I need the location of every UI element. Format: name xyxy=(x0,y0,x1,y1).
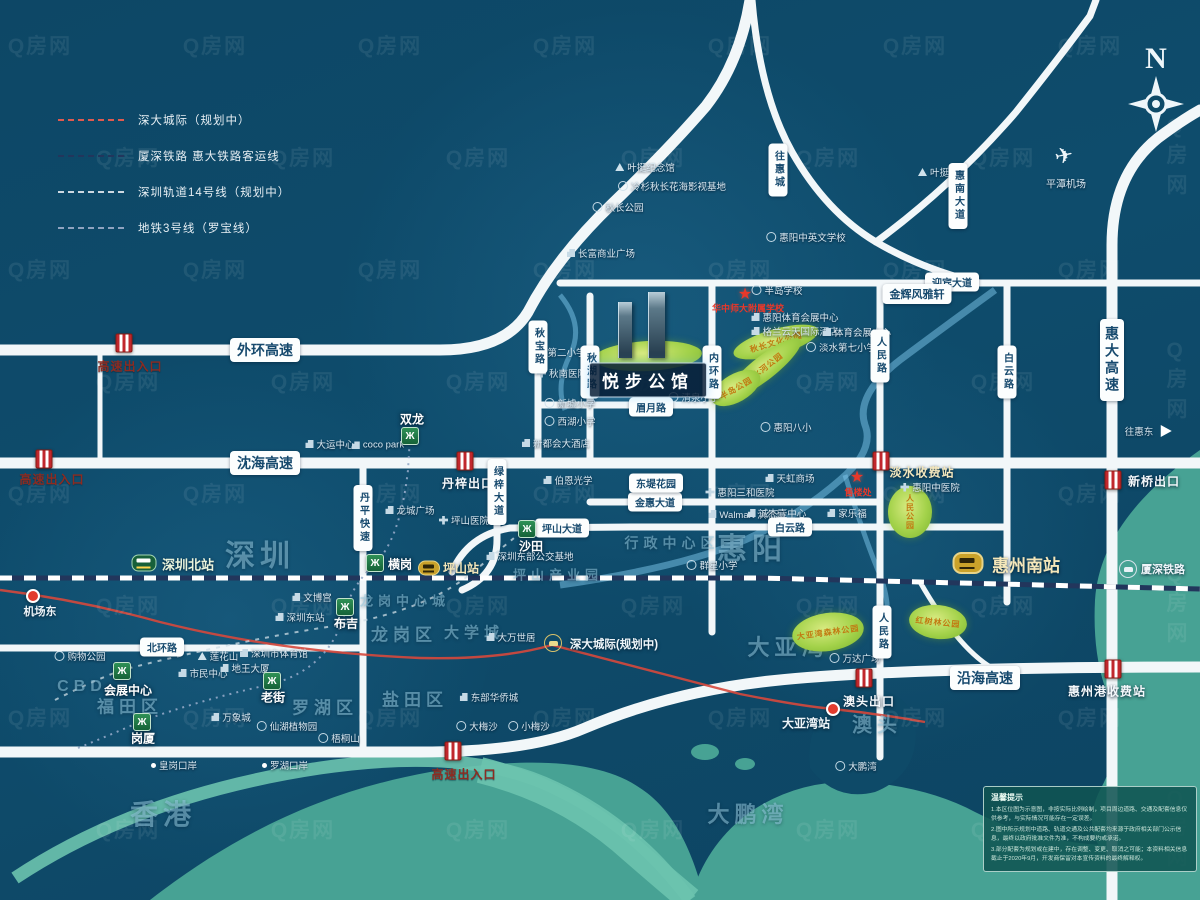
legend-item: 厦深铁路 惠大铁路客运线 xyxy=(58,148,290,164)
toll-gate-icon xyxy=(1105,471,1122,490)
poi-label: 购物公园 xyxy=(54,649,105,663)
poi-label: 天虹商场 xyxy=(765,471,814,485)
road-label: 白云路 xyxy=(768,518,812,537)
exit-label: 高速出入口 xyxy=(97,358,162,375)
poi-text: 西湖小学 xyxy=(557,414,595,428)
legend-label: 深大城际（规划中） xyxy=(138,112,251,128)
poi-label: 冷杉秋长花海影视基地 xyxy=(618,179,726,193)
poi-label: 大梅沙 xyxy=(456,719,498,733)
bld-icon xyxy=(220,664,228,672)
poi-text: 深圳东站 xyxy=(286,610,324,624)
legend-label: 深圳轨道14号线（规划中） xyxy=(138,184,290,200)
station-label: 惠州南站 xyxy=(992,552,1060,577)
school-icon xyxy=(508,721,518,731)
poi-label: 大万世居 xyxy=(486,630,535,644)
bld-icon xyxy=(827,509,835,517)
toll-gate-icon xyxy=(457,452,474,471)
poi-text: 仙湖植物园 xyxy=(270,719,318,733)
poi-text: coco park xyxy=(363,440,404,451)
poi-label: 大鹏湾 xyxy=(835,759,877,773)
metro-station-label: 会展中心 xyxy=(104,682,152,699)
bld-icon xyxy=(305,440,313,448)
legend-line-sample xyxy=(58,155,124,157)
road-label: 眉月路 xyxy=(629,398,673,417)
poi-label: 西湖小学 xyxy=(544,414,595,428)
train-station-icon xyxy=(1119,560,1137,578)
compass-rose-icon xyxy=(1128,76,1184,132)
bld-icon xyxy=(486,633,494,641)
school-icon xyxy=(318,733,328,743)
poi-label: 深圳东站 xyxy=(275,610,324,624)
bld-icon xyxy=(486,552,494,560)
road-label: 沿海高速 xyxy=(950,666,1020,690)
region-label: 龙岗中心城 xyxy=(360,591,450,610)
poi-text: 天虹商场 xyxy=(776,471,814,485)
poi-text: 大运中心 xyxy=(316,437,354,451)
poi-text: 坪山医院 xyxy=(451,513,489,527)
location-map: 悦步公馆 深大城际（规划中）厦深铁路 惠大铁路客运线深圳轨道14号线（规划中）地… xyxy=(0,0,1200,900)
school-icon xyxy=(686,560,696,570)
bld-icon xyxy=(292,593,300,601)
poi-text: 惠阳中医院 xyxy=(912,480,960,494)
bld-icon xyxy=(240,649,248,657)
poi-label: 惠阳中医院 xyxy=(900,480,960,494)
metro-icon: Ж xyxy=(133,713,151,731)
poi-label: 伯恩光学 xyxy=(543,473,592,487)
poi-text: 群星小学 xyxy=(699,558,737,572)
poi-text: 小梅沙 xyxy=(521,719,550,733)
station-label: 厦深铁路 xyxy=(1141,561,1185,577)
region-label: 大鹏湾 xyxy=(707,797,788,829)
station-label: 坪山站 xyxy=(443,560,479,577)
mon-icon xyxy=(918,168,927,176)
poi-label: 龙城广场 xyxy=(385,503,434,517)
metro-icon: Ж xyxy=(113,662,131,680)
poi-label: 长富商业广场 xyxy=(567,246,635,260)
poi-label: 半岛学校 xyxy=(751,283,802,297)
poi-text: 皇岗口岸 xyxy=(159,758,197,772)
train-station-icon xyxy=(418,561,440,576)
toll-gate-icon xyxy=(445,742,462,761)
road-label: 往惠城 xyxy=(769,144,788,197)
bld-icon xyxy=(522,439,530,447)
bld-icon xyxy=(275,613,283,621)
toll-gate-icon xyxy=(856,669,873,688)
disclaimer-line: 2.图中所示规划中道路、轨道交通及公共配套均来源于政府相关部门公示信息，最终以政… xyxy=(991,826,1189,844)
station-label: 大亚湾站 xyxy=(782,715,830,732)
hosp-icon xyxy=(705,488,714,497)
poi-text: 秋长公园 xyxy=(605,200,643,214)
poi-label: 梧桐山 xyxy=(318,731,360,745)
mark-label: 售楼处 xyxy=(844,486,871,499)
road-label: 人民路 xyxy=(871,330,890,383)
road-label: 惠南大道 xyxy=(949,163,968,229)
school-icon xyxy=(544,416,554,426)
poi-label: 皇岗口岸 xyxy=(151,758,197,772)
region-label: 行政中心区 xyxy=(625,533,720,553)
poi-label: 地王大厦 xyxy=(220,661,269,675)
poi-label: 淡水第七小学 xyxy=(806,340,876,354)
compass: N xyxy=(1128,42,1184,137)
poi-label: 往惠东 xyxy=(1125,424,1172,438)
road-label: 秋宝路 xyxy=(529,321,548,374)
exit-label: 新桥出口 xyxy=(1128,473,1180,490)
metro-station-label: 布吉 xyxy=(334,615,358,632)
legend-item: 地铁3号线（罗宝线） xyxy=(58,220,290,236)
bld-icon xyxy=(543,476,551,484)
poi-label: 罗湖口岸 xyxy=(262,758,308,772)
legend-item: 深大城际（规划中） xyxy=(58,112,290,128)
poi-label: 秋长公园 xyxy=(592,200,643,214)
dotw-icon xyxy=(151,763,156,768)
legend-label: 地铁3号线（罗宝线） xyxy=(138,220,258,236)
region-label: 澳头 xyxy=(852,709,902,738)
park-name: 大亚湾森林公园 xyxy=(796,622,860,642)
poi-text: 往惠东 xyxy=(1125,424,1154,438)
bld-icon xyxy=(178,669,186,677)
poi-label: 深圳市体育馆 xyxy=(240,646,308,660)
road-label: 北环路 xyxy=(140,638,184,657)
station-label: 机场东 xyxy=(24,603,57,619)
poi-label: 深圳东部公交基地 xyxy=(486,549,573,563)
bld-icon xyxy=(748,509,756,517)
bld-icon xyxy=(460,693,468,701)
metro-station-label: 双龙 xyxy=(400,411,424,428)
compass-north-label: N xyxy=(1128,42,1184,76)
school-icon xyxy=(592,202,602,212)
exit-label: 丹梓出口 xyxy=(442,475,494,492)
bld-icon xyxy=(352,441,360,449)
school-icon xyxy=(456,721,466,731)
school-icon xyxy=(806,342,816,352)
legend-label: 厦深铁路 惠大铁路客运线 xyxy=(138,148,280,164)
poi-label: 大运中心 xyxy=(305,437,354,451)
poi-text: 惠阳中英文学校 xyxy=(779,230,846,244)
metro-icon: Ж xyxy=(336,598,354,616)
poi-label: coco park xyxy=(352,440,404,451)
school-icon xyxy=(829,653,839,663)
poi-label: 惠阳中英文学校 xyxy=(766,230,846,244)
school-icon xyxy=(751,285,761,295)
school-icon xyxy=(766,232,776,242)
disclaimer-title: 温馨提示 xyxy=(991,792,1189,803)
toll-gate-icon xyxy=(116,334,133,353)
poi-text: 龙城广场 xyxy=(396,503,434,517)
train-station-icon xyxy=(132,555,157,572)
road-label: 丹平快速 xyxy=(354,485,373,551)
mark-label: 平潭机场 xyxy=(1046,176,1086,191)
legend-item: 深圳轨道14号线（规划中） xyxy=(58,184,290,200)
map-legend: 深大城际（规划中）厦深铁路 惠大铁路客运线深圳轨道14号线（规划中）地铁3号线（… xyxy=(58,112,290,256)
region-label: 盐田区 xyxy=(382,686,448,711)
region-label: 香港 xyxy=(130,793,196,833)
metro-icon: Ж xyxy=(366,554,384,572)
exit-label: 惠州港收费站 xyxy=(1068,683,1146,700)
metro-station-label: 横岗 xyxy=(388,556,412,573)
school-icon xyxy=(54,651,64,661)
road-label: 白云路 xyxy=(998,346,1017,399)
poi-label: 群星小学 xyxy=(686,558,737,572)
dotw-icon xyxy=(262,763,267,768)
mon-icon xyxy=(615,163,624,171)
station-dot-icon xyxy=(826,702,840,716)
poi-text: 梧桐山 xyxy=(331,731,360,745)
poi-text: 深圳东部公交基地 xyxy=(497,549,573,563)
road-label: 金惠大道 xyxy=(628,493,682,512)
train-station-icon xyxy=(544,634,562,652)
poi-label: 东部华侨城 xyxy=(460,690,519,704)
hosp-icon xyxy=(900,483,909,492)
road-label: 沈海高速 xyxy=(230,451,300,475)
poi-label: 万象城 xyxy=(211,710,251,724)
road-label: 外环高速 xyxy=(230,338,300,362)
poi-label: 仙湖植物园 xyxy=(257,719,318,733)
poi-text: 大梅沙 xyxy=(469,719,498,733)
metro-icon: Ж xyxy=(263,672,281,690)
project-tower-right xyxy=(648,292,665,358)
poi-text: 叶挺纪念馆 xyxy=(627,160,675,174)
metro-icon: Ж xyxy=(518,520,536,538)
poi-text: 深圳市体育馆 xyxy=(251,646,308,660)
poi-text: 惠阳八小 xyxy=(773,420,811,434)
disclaimer-line: 1.本区位图为示意图，非按实际比例绘制，项目周边道路、交通及配套信息仅供参考，与… xyxy=(991,806,1189,824)
poi-text: 大鹏湾 xyxy=(848,759,877,773)
legend-line-sample xyxy=(58,191,124,193)
poi-text: 惠阳三和医院 xyxy=(717,485,774,499)
station-label: 深大城际(规划中) xyxy=(570,636,658,652)
poi-text: 罗湖口岸 xyxy=(270,758,308,772)
region-label: 罗湖区 xyxy=(292,694,358,719)
exit-label: 高速出入口 xyxy=(431,766,496,783)
poi-label: 叶挺纪念馆 xyxy=(615,160,675,174)
poi-text: 家乐福 xyxy=(838,506,867,520)
poi-text: 购物公园 xyxy=(67,649,105,663)
direction-arrow-icon xyxy=(1160,425,1171,437)
railways xyxy=(0,437,1200,748)
metro-icon: Ж xyxy=(401,427,419,445)
project-tower-left xyxy=(618,302,632,358)
toll-gate-icon xyxy=(1105,660,1122,679)
poi-label: 坪山医院 xyxy=(439,513,489,527)
region-label: 坪山产业园 xyxy=(513,565,603,584)
poi-text: 冷杉秋长花海影视基地 xyxy=(631,179,726,193)
poi-text: 长富商业广场 xyxy=(578,246,635,260)
disclaimer-box: 温馨提示 1.本区位图为示意图，非按实际比例绘制，项目周边道路、交通及配套信息仅… xyxy=(983,786,1197,872)
poi-text: 淡水第七小学 xyxy=(819,340,876,354)
region-label: 龙岗区 xyxy=(371,621,437,646)
poi-text: 新都会大酒店 xyxy=(533,436,590,450)
disclaimer-line: 3.部分配套为规划或在建中，存在调整、变更、取消之可能；本资料相关信息截止于20… xyxy=(991,846,1189,864)
poi-text: 万象城 xyxy=(222,710,251,724)
school-icon xyxy=(835,761,845,771)
project-name-box: 悦步公馆 xyxy=(589,363,707,398)
legend-line-sample xyxy=(58,119,124,121)
mon-icon xyxy=(198,652,207,660)
mark-label: 华中师大附属学校 xyxy=(712,302,784,315)
school-icon xyxy=(544,398,554,408)
station-label: 深圳北站 xyxy=(162,555,214,574)
poi-label: 小梅沙 xyxy=(508,719,550,733)
poi-text: 东部华侨城 xyxy=(471,690,519,704)
hosp-icon xyxy=(439,516,448,525)
region-label: 深圳 xyxy=(225,531,295,575)
road-label: 绿梓大道 xyxy=(488,459,507,525)
school-icon xyxy=(618,181,628,191)
exit-label: 澳头出口 xyxy=(843,693,895,710)
bld-icon xyxy=(823,328,831,336)
park-name: 红树林公园 xyxy=(915,614,961,630)
metro-station-label: 岗厦 xyxy=(131,730,155,747)
bld-icon xyxy=(765,474,773,482)
exit-label: 淡水收费站 xyxy=(889,464,954,481)
school-icon xyxy=(760,422,770,432)
legend-line-sample xyxy=(58,227,124,229)
bld-icon xyxy=(708,510,716,518)
poi-label: 惠阳八小 xyxy=(760,420,811,434)
toll-gate-icon xyxy=(873,452,890,471)
park-name: 人民公园 xyxy=(905,494,916,530)
road-label: 惠大高速 xyxy=(1100,319,1124,401)
poi-text: 大万世居 xyxy=(497,630,535,644)
road-label: 坪山大道 xyxy=(535,519,589,538)
poi-text: 伯恩光学 xyxy=(554,473,592,487)
road-label: 金辉风雅轩 xyxy=(883,284,952,304)
exit-label: 高速出入口 xyxy=(19,471,84,488)
poi-text: 半岛学校 xyxy=(764,283,802,297)
poi-label: 家乐福 xyxy=(827,506,867,520)
school-icon xyxy=(257,721,267,731)
metro-station-label: 老街 xyxy=(261,689,285,706)
bld-icon xyxy=(751,327,759,335)
bld-icon xyxy=(211,713,219,721)
poi-text: 文博宫 xyxy=(303,590,332,604)
station-dot-icon xyxy=(26,589,40,603)
poi-label: 新都会大酒店 xyxy=(522,436,590,450)
train-station-icon xyxy=(953,552,984,574)
bld-icon xyxy=(385,506,393,514)
toll-gate-icon xyxy=(36,450,53,469)
poi-label: 惠阳三和医院 xyxy=(705,485,774,499)
road-label: 人民路 xyxy=(873,606,892,659)
bld-icon xyxy=(567,249,575,257)
road-label: 东堤花园 xyxy=(629,474,683,493)
star-marker-icon: ★ xyxy=(850,467,864,487)
poi-label: 文博宫 xyxy=(292,590,332,604)
